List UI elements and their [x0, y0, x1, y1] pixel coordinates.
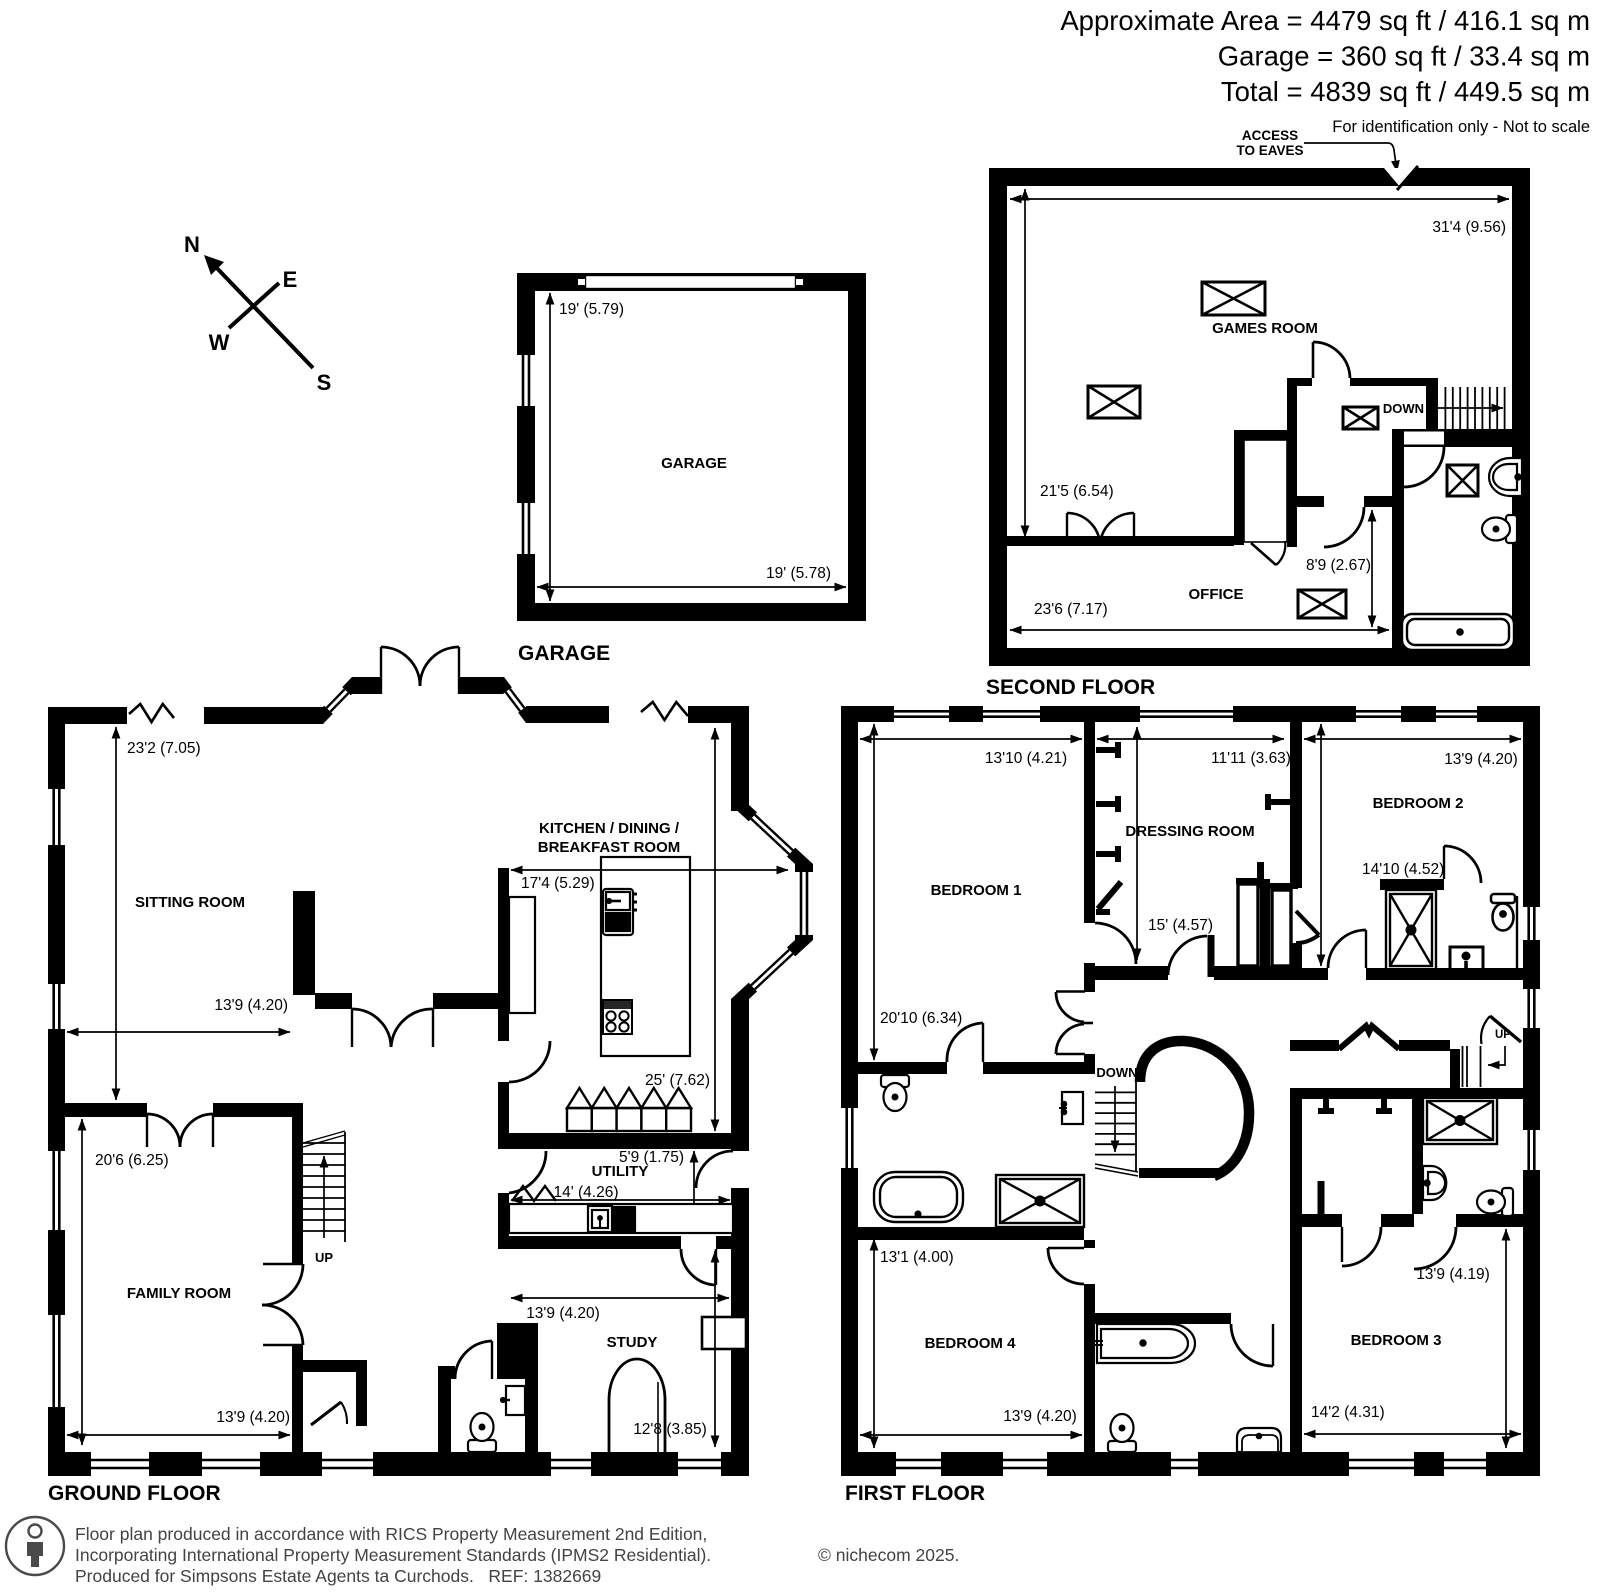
svg-text:UP: UP — [315, 1250, 333, 1265]
svg-text:31'4 (9.56): 31'4 (9.56) — [1432, 219, 1506, 236]
svg-text:21'5 (6.54): 21'5 (6.54) — [1040, 483, 1114, 500]
svg-text:E: E — [283, 267, 298, 292]
svg-text:DRESSING ROOM: DRESSING ROOM — [1125, 823, 1254, 840]
svg-text:20'10 (6.34): 20'10 (6.34) — [880, 1010, 962, 1027]
svg-text:13'9 (4.20): 13'9 (4.20) — [526, 1305, 600, 1322]
svg-text:SITTING ROOM: SITTING ROOM — [135, 894, 245, 911]
svg-text:OFFICE: OFFICE — [1189, 586, 1244, 603]
svg-text:GARAGE: GARAGE — [661, 455, 727, 472]
svg-text:13'10 (4.21): 13'10 (4.21) — [985, 750, 1067, 767]
svg-text:BEDROOM 4: BEDROOM 4 — [925, 1335, 1017, 1352]
svg-text:KITCHEN / DINING /: KITCHEN / DINING / — [539, 820, 680, 837]
svg-text:19' (5.78): 19' (5.78) — [766, 565, 831, 582]
svg-text:Total = 4839 sq ft / 449.5 sq: Total = 4839 sq ft / 449.5 sq m — [1221, 76, 1590, 107]
svg-text:13'9 (4.20): 13'9 (4.20) — [216, 1409, 290, 1426]
svg-text:25' (7.62): 25' (7.62) — [645, 1072, 710, 1089]
svg-text:BEDROOM 3: BEDROOM 3 — [1351, 1332, 1442, 1349]
svg-text:11'11 (3.63): 11'11 (3.63) — [1211, 750, 1291, 767]
svg-text:Approximate Area = 4479 sq ft: Approximate Area = 4479 sq ft / 416.1 sq… — [1060, 5, 1590, 36]
svg-text:GAMES ROOM: GAMES ROOM — [1212, 320, 1318, 337]
svg-text:13'1 (4.00): 13'1 (4.00) — [880, 1249, 954, 1266]
svg-text:GARAGE: GARAGE — [518, 642, 610, 665]
svg-text:17'4 (5.29): 17'4 (5.29) — [521, 875, 595, 892]
svg-text:13'9 (4.19): 13'9 (4.19) — [1416, 1266, 1490, 1283]
svg-text:W: W — [209, 330, 230, 355]
svg-text:FIRST FLOOR: FIRST FLOOR — [845, 1482, 985, 1505]
svg-text:For identification only - Not: For identification only - Not to scale — [1332, 118, 1590, 136]
svg-text:13'9 (4.20): 13'9 (4.20) — [1444, 751, 1518, 768]
svg-text:DOWN: DOWN — [1096, 1065, 1137, 1080]
svg-text:BEDROOM 2: BEDROOM 2 — [1373, 795, 1464, 812]
svg-text:14'10 (4.52): 14'10 (4.52) — [1362, 861, 1444, 878]
svg-text:Incorporating International Pr: Incorporating International Property Mea… — [75, 1545, 711, 1565]
svg-text:13'9 (4.20): 13'9 (4.20) — [1003, 1408, 1077, 1425]
svg-text:GROUND FLOOR: GROUND FLOOR — [48, 1482, 221, 1505]
svg-text:DOWN: DOWN — [1383, 401, 1424, 416]
svg-text:8'9 (2.67): 8'9 (2.67) — [1306, 557, 1371, 574]
svg-text:14'2 (4.31): 14'2 (4.31) — [1311, 1404, 1385, 1421]
svg-text:5'9 (1.75): 5'9 (1.75) — [619, 1149, 684, 1166]
svg-text:23'6 (7.17): 23'6 (7.17) — [1034, 601, 1108, 618]
svg-text:BEDROOM 1: BEDROOM 1 — [931, 882, 1022, 899]
svg-text:SECOND FLOOR: SECOND FLOOR — [986, 676, 1155, 699]
svg-text:12'8 (3.85): 12'8 (3.85) — [633, 1421, 707, 1438]
svg-text:S: S — [317, 370, 332, 395]
svg-text:TO EAVES: TO EAVES — [1236, 143, 1303, 158]
svg-text:FAMILY ROOM: FAMILY ROOM — [127, 1285, 231, 1302]
svg-text:13'9 (4.20): 13'9 (4.20) — [214, 997, 288, 1014]
svg-text:Garage = 360 sq ft / 33.4 sq m: Garage = 360 sq ft / 33.4 sq m — [1218, 41, 1590, 72]
svg-text:Produced for Simpsons Estate A: Produced for Simpsons Estate Agents ta C… — [75, 1566, 601, 1586]
svg-text:N: N — [184, 232, 200, 257]
svg-text:14' (4.26): 14' (4.26) — [554, 1184, 619, 1201]
svg-text:Floor plan produced in accorda: Floor plan produced in accordance with R… — [75, 1524, 707, 1544]
svg-text:STUDY: STUDY — [607, 1334, 658, 1351]
svg-text:© nichecom 2025.: © nichecom 2025. — [818, 1545, 959, 1565]
svg-text:15' (4.57): 15' (4.57) — [1148, 917, 1213, 934]
svg-text:23'2 (7.05): 23'2 (7.05) — [127, 740, 201, 757]
svg-text:ACCESS: ACCESS — [1242, 128, 1298, 143]
svg-text:20'6 (6.25): 20'6 (6.25) — [95, 1152, 169, 1169]
svg-text:19' (5.79): 19' (5.79) — [559, 301, 624, 318]
svg-text:BREAKFAST ROOM: BREAKFAST ROOM — [538, 839, 681, 856]
